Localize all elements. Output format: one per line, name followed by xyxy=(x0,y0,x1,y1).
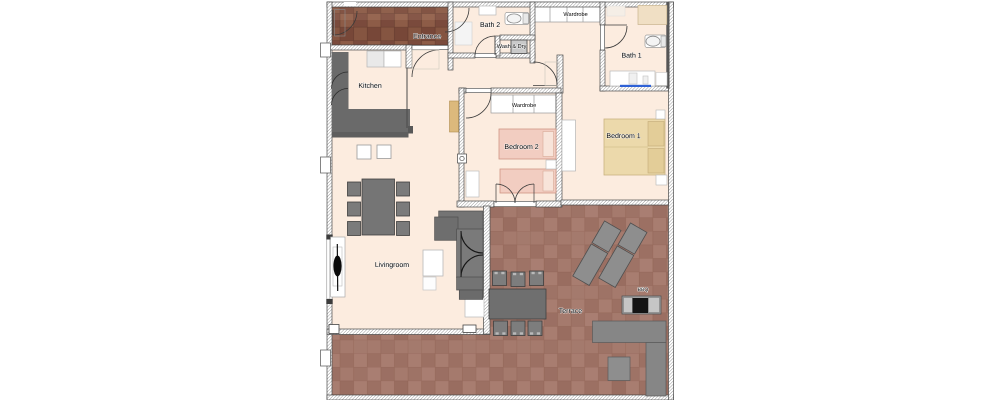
svg-text:Bath 2: Bath 2 xyxy=(480,22,500,29)
svg-text:Terrace: Terrace xyxy=(559,308,582,315)
svg-text:Wash & Dry: Wash & Dry xyxy=(497,44,527,50)
svg-text:BBQ: BBQ xyxy=(638,287,649,293)
svg-text:Entrance: Entrance xyxy=(413,33,441,40)
svg-text:Bedroom 2: Bedroom 2 xyxy=(504,144,538,151)
svg-text:Wardrobe: Wardrobe xyxy=(512,103,536,109)
svg-text:Bedroom 1: Bedroom 1 xyxy=(606,133,640,140)
svg-text:Kitchen: Kitchen xyxy=(358,83,381,90)
svg-text:Bath 1: Bath 1 xyxy=(621,53,641,60)
svg-text:Wardrobe: Wardrobe xyxy=(563,12,587,18)
svg-text:Livingroom: Livingroom xyxy=(375,262,409,269)
